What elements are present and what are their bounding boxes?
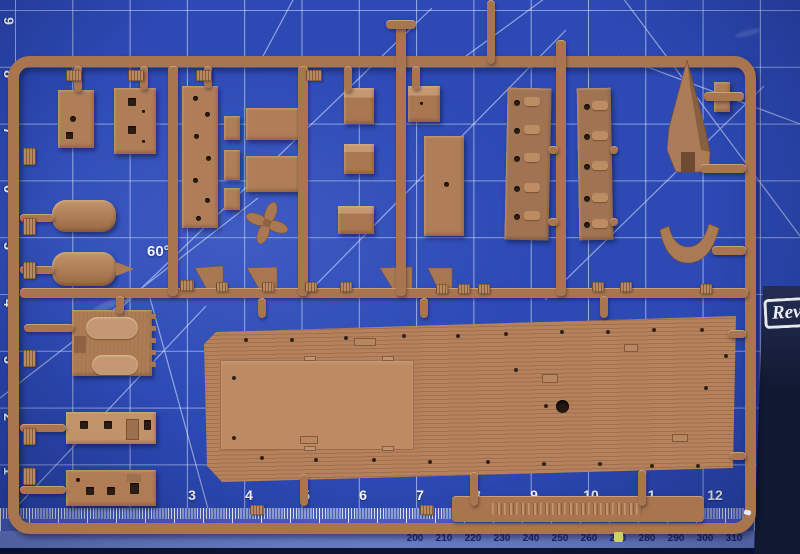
part-hole [66,132,73,139]
part-number-tag [436,284,448,294]
deck-porthole-dot [724,354,728,358]
wall-porthole [584,134,590,140]
part-hole [206,156,211,161]
deck-hatch [542,374,558,383]
deck-cleat [304,356,316,361]
part-hole [128,98,136,106]
wall-porthole [514,156,520,162]
deck-porthole-dot [244,338,248,342]
wall-porthole [514,128,520,134]
sprue-runner [470,472,478,506]
part-hole [193,178,198,183]
wall-porthole [584,104,590,110]
deck-porthole-dot [700,328,704,332]
deck-porthole-dot [652,328,656,332]
part-small-box [344,144,374,174]
part-flat-plate-c [246,108,300,140]
window-opening [144,420,151,430]
part-number-tag [180,280,194,291]
wall-molded-pad [592,219,608,228]
deck-porthole-dot [504,332,508,336]
sprue [0,0,800,554]
sprue-runner [396,26,406,296]
deck-porthole-dot [314,458,318,462]
part-hole [70,116,76,122]
deck-porthole-dot [344,336,348,340]
deck-porthole-dot [696,464,700,468]
sprue-runner [258,298,266,318]
part-number-tag [23,148,36,165]
sprue-runner [20,288,748,298]
sprue-runner [24,324,74,332]
part-number-tag [478,284,490,294]
sprue-runner [168,66,178,296]
part-hole [142,110,145,113]
door-detail [127,474,141,482]
deck-porthole-dot [402,334,406,338]
part-number-tag [700,284,712,294]
part-small-strip [224,150,240,180]
part-hole [193,96,198,101]
wall-molded-pad [524,183,540,192]
sprue-runner [300,474,308,506]
part-number-tag [305,282,317,292]
part-hole [196,216,201,221]
deck-porthole-dot [486,460,490,464]
deck-porthole-dot [232,436,236,440]
wall-molded-pad [592,101,608,110]
wall-porthole [584,196,590,202]
part-number-tag [250,505,264,515]
wall-molded-pad [592,161,608,170]
part-number-tag [340,282,352,292]
sprue-runner [412,66,420,90]
deck-hatch [300,436,318,444]
deck-porthole-dot [560,330,564,334]
wall-porthole [514,214,520,220]
part-flat-plate-d [246,156,300,192]
part-hole [420,102,423,105]
window-opening [86,487,94,495]
part-number-tag [23,262,36,279]
part-deckhouse-wall-2 [66,470,156,506]
part-hole [444,182,449,187]
deck-porthole-dot [542,462,546,466]
part-small-strip [224,188,240,210]
hatch-tooth [150,314,156,319]
part-small-box [338,206,374,234]
part-number-tag [262,282,274,292]
wall-porthole [584,222,590,228]
wall-molded-pad [592,193,608,202]
part-deckhouse-wall-1 [66,412,156,444]
hatch-tooth [150,326,156,331]
sprue-runner [344,66,352,92]
part-number-tag [216,282,228,292]
part-hole [142,140,145,143]
part-small-strip [224,116,240,140]
part-small-box [344,88,374,124]
part-lifeboat-2 [52,252,116,286]
deck-porthole-dot [598,462,602,466]
wall-molded-pad [524,211,540,220]
sprue-runner [730,452,746,460]
part-flat-plate-b [114,88,156,154]
deck-porthole-dot [260,456,264,460]
part-number-tag [128,70,144,81]
deck-hatch [672,434,688,442]
sprue-runner [728,330,746,338]
wall-porthole [584,164,590,170]
sprue-runner [386,20,416,29]
part-hole [205,112,210,117]
window-opening [107,487,115,495]
part-number-tag [458,284,470,294]
wall-molded-pad [524,97,540,106]
sprue-runner [20,486,66,494]
sprue-runner [610,218,618,226]
wall-porthole [514,186,520,192]
debris-speck [614,532,623,542]
part-number-tag [420,505,434,515]
part-number-tag [23,468,36,485]
sprue-runner [556,40,566,296]
part-number-tag [306,70,322,81]
wall-molded-pad [524,125,540,134]
molded-text-tab [452,496,704,522]
deck-porthole-dot [704,386,708,390]
sprue-runner [548,146,558,154]
sprue-runner [298,66,308,296]
part-number-tag [592,282,604,292]
deck-hatch [624,344,638,352]
deck-cleat [382,446,394,451]
sprue-runner [600,296,608,318]
sprue-runner [638,470,646,506]
part-small-box [408,86,440,122]
hatch-tooth [150,362,156,367]
sprue-runner [610,146,618,154]
sprue-runner [712,246,746,255]
part-hole [128,126,136,134]
part-hatch-cover [72,310,152,376]
hatch-tooth [150,350,156,355]
door-detail [126,419,139,440]
window-opening [104,421,112,429]
part-tall-panel [424,136,464,236]
part-number-tag [23,350,36,367]
deck-round-hole [556,400,569,413]
part-hole [76,478,80,482]
part-main-deck [204,316,736,482]
part-tall-plate [182,86,218,228]
deck-porthole-dot [650,464,654,468]
part-number-tag [23,428,36,445]
part-hole [194,134,199,139]
deck-porthole-dot [372,458,376,462]
wall-molded-pad [592,131,608,140]
hatch-oval-pad [92,355,138,375]
sprue-runner [700,164,746,173]
deck-porthole-dot [456,334,460,338]
deck-hatch [354,338,376,346]
deck-porthole-dot [544,404,548,408]
deck-porthole-dot [428,460,432,464]
wall-porthole [514,100,520,106]
part-hole [205,198,210,203]
photo-stage: 60° 9876543210 012345678910111213 200210… [0,0,800,554]
sprue-runner [548,218,558,226]
part-number-tag [66,70,82,81]
hatch-tooth [150,338,156,343]
deck-cleat [304,446,316,451]
sprue-runner [420,298,428,318]
deck-porthole-dot [606,330,610,334]
deck-porthole-dot [514,368,518,372]
hatch-tab [74,336,86,353]
part-flat-plate-a [58,90,94,148]
wall-molded-pad [524,153,540,162]
sprue-runner [704,92,744,101]
window-opening [80,421,88,429]
part-number-tag [620,282,632,292]
deck-cleat [382,356,394,361]
hatch-oval-pad [86,317,138,339]
sprue-runner [487,0,495,64]
sprue-runner [116,296,124,314]
deck-porthole-dot [290,338,294,342]
part-number-tag [23,218,36,235]
part-lifeboat-1 [52,200,116,232]
window-opening [130,483,139,494]
part-number-tag [196,70,212,81]
deck-porthole-dot [232,376,236,380]
